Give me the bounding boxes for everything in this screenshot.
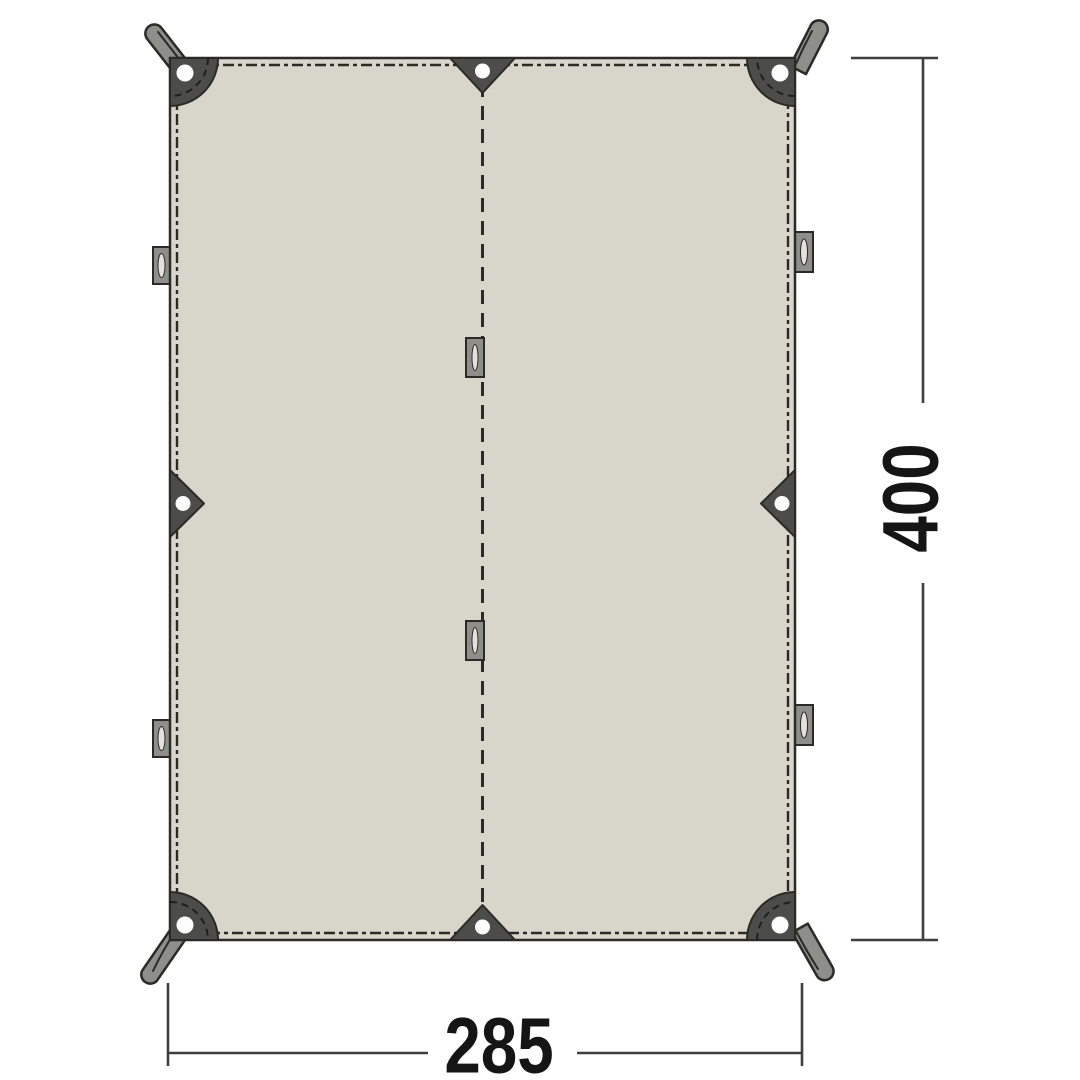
loop-slot bbox=[801, 239, 808, 265]
center-tab-upper bbox=[466, 338, 484, 377]
center-tab-lower bbox=[466, 621, 484, 660]
edge-loop-left-lower bbox=[153, 720, 170, 757]
loop-slot bbox=[158, 254, 165, 278]
loop-slot bbox=[158, 727, 165, 751]
grommet-icon bbox=[177, 65, 194, 82]
edge-loop-right-lower bbox=[795, 705, 813, 745]
height-dimension: 400 bbox=[851, 58, 955, 940]
diagram-canvas: 400 285 bbox=[0, 0, 1080, 1080]
tarp-dimension-diagram: 400 285 bbox=[0, 0, 1080, 1080]
grommet-icon bbox=[177, 917, 194, 934]
edge-loop-right-upper bbox=[795, 232, 813, 272]
loop-slot bbox=[801, 712, 808, 738]
width-dimension: 285 bbox=[168, 983, 802, 1080]
tab-slot bbox=[472, 345, 478, 371]
corner-strap-bottom-right bbox=[792, 924, 833, 981]
grommet-icon bbox=[772, 917, 789, 934]
grommet-icon bbox=[475, 64, 490, 79]
width-dimension-label: 285 bbox=[444, 1002, 553, 1080]
grommet-icon bbox=[772, 65, 789, 82]
grommet-icon bbox=[176, 496, 191, 511]
height-dimension-label: 400 bbox=[867, 443, 955, 552]
grommet-icon bbox=[475, 920, 490, 935]
strap-band bbox=[792, 924, 833, 981]
grommet-icon bbox=[775, 496, 790, 511]
tab-slot bbox=[472, 628, 478, 654]
edge-loop-left-upper bbox=[153, 247, 170, 284]
